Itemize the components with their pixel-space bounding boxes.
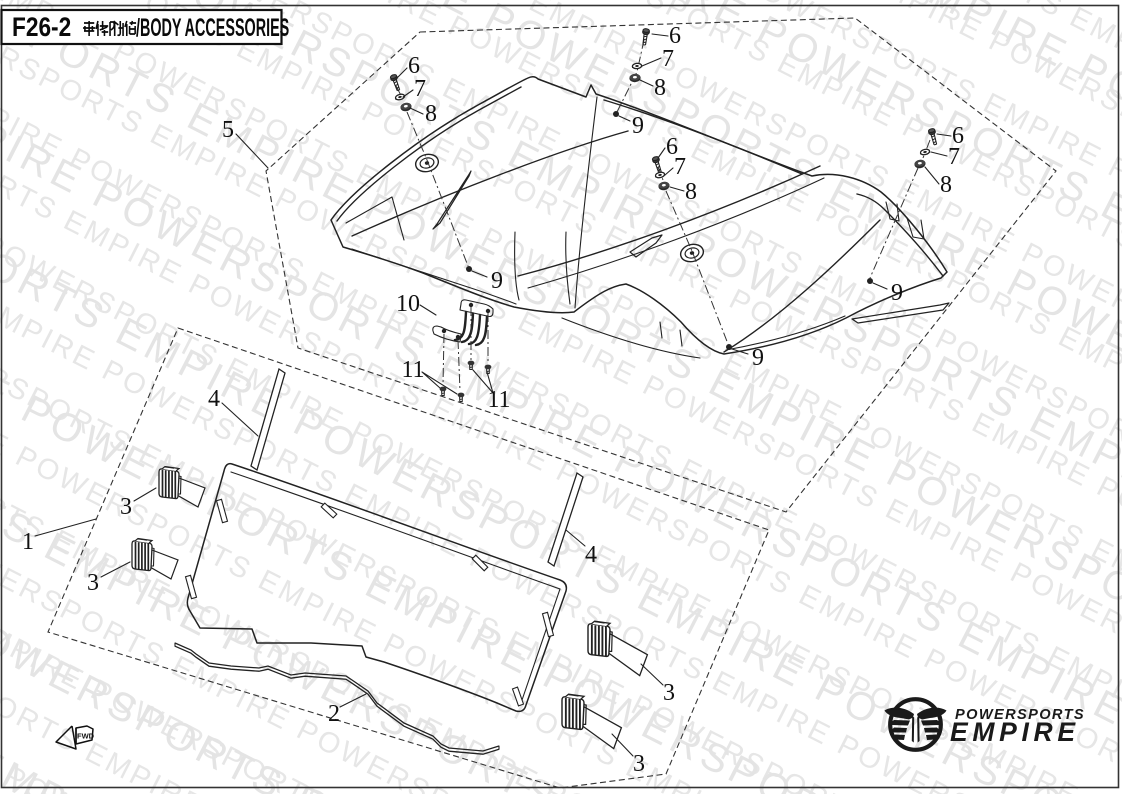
svg-text:7: 7 bbox=[948, 144, 960, 170]
svg-text:1: 1 bbox=[22, 529, 34, 555]
svg-text:10: 10 bbox=[396, 291, 420, 317]
svg-text:3: 3 bbox=[633, 751, 645, 777]
svg-text:4: 4 bbox=[585, 542, 597, 568]
svg-text:7: 7 bbox=[674, 154, 686, 180]
svg-text:5: 5 bbox=[222, 117, 234, 143]
svg-text:11: 11 bbox=[487, 387, 510, 413]
svg-text:9: 9 bbox=[491, 268, 503, 294]
svg-text:11: 11 bbox=[401, 357, 424, 383]
svg-text:9: 9 bbox=[632, 113, 644, 139]
svg-text:3: 3 bbox=[120, 494, 132, 520]
svg-text:/BODY ACCESSORIES: /BODY ACCESSORIES bbox=[136, 15, 289, 42]
svg-text:7: 7 bbox=[414, 76, 426, 102]
svg-text:4: 4 bbox=[208, 386, 220, 412]
svg-text:2: 2 bbox=[328, 701, 340, 727]
svg-text:FWD: FWD bbox=[77, 732, 95, 741]
svg-text:3: 3 bbox=[663, 680, 675, 706]
svg-text:9: 9 bbox=[752, 345, 764, 371]
svg-text:3: 3 bbox=[87, 570, 99, 596]
svg-text:8: 8 bbox=[685, 179, 697, 205]
svg-text:9: 9 bbox=[891, 280, 903, 306]
svg-text:8: 8 bbox=[940, 172, 952, 198]
svg-text:8: 8 bbox=[654, 75, 666, 101]
svg-text:8: 8 bbox=[425, 101, 437, 127]
svg-text:7: 7 bbox=[662, 46, 674, 72]
svg-text:EMPIRE: EMPIRE bbox=[950, 717, 1077, 747]
svg-text:F26-2: F26-2 bbox=[12, 12, 71, 42]
